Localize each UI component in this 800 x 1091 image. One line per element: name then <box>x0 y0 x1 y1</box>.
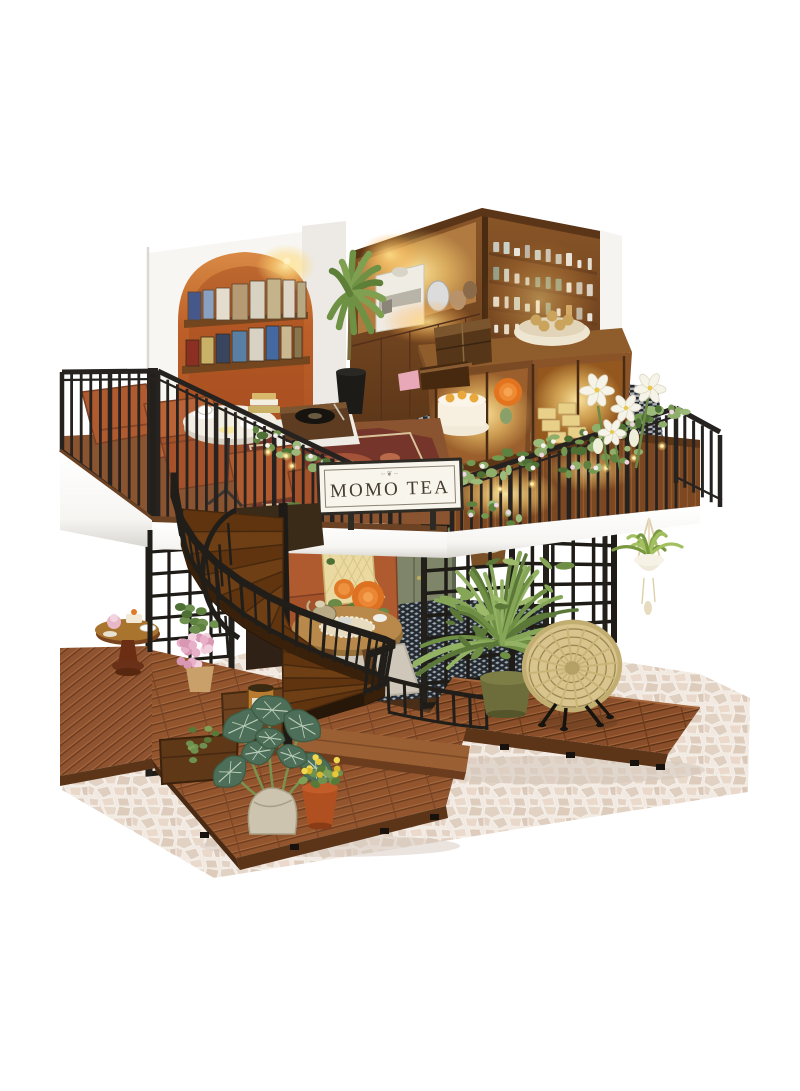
svg-text:MOMO TEA: MOMO TEA <box>330 477 451 502</box>
svg-text:~ ❦ ~: ~ ❦ ~ <box>381 470 398 479</box>
